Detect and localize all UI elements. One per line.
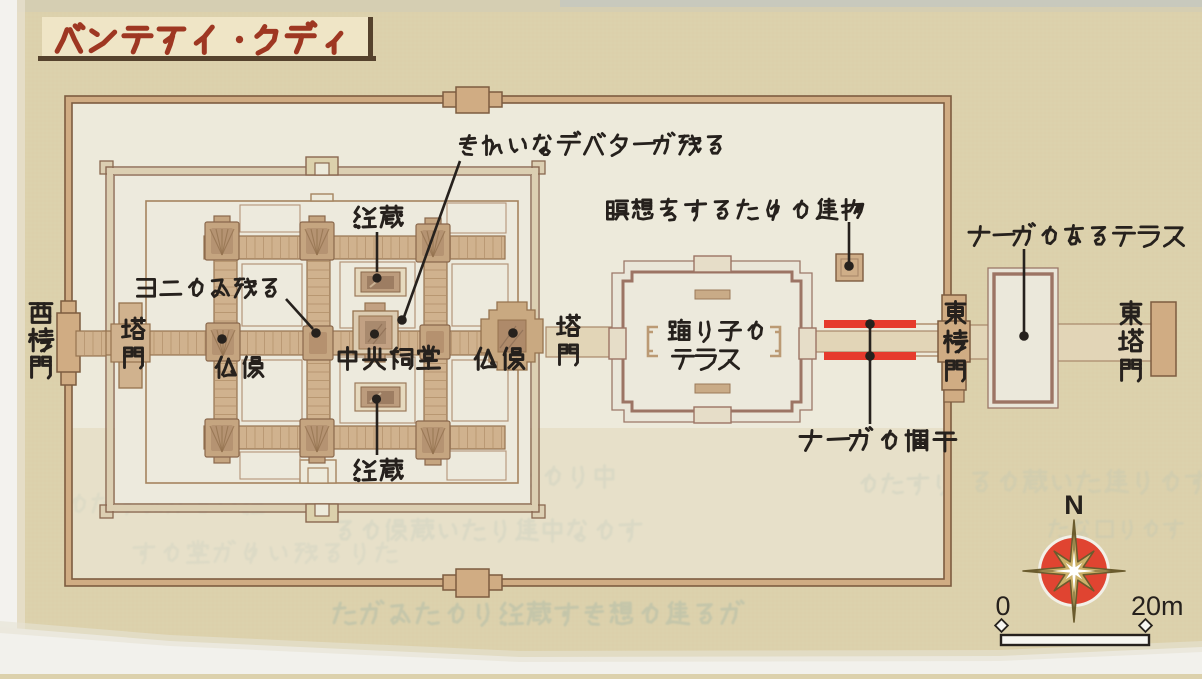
svg-text:20m: 20m	[1131, 591, 1184, 621]
svg-text:N: N	[1064, 490, 1084, 520]
svg-text:0: 0	[995, 591, 1010, 621]
